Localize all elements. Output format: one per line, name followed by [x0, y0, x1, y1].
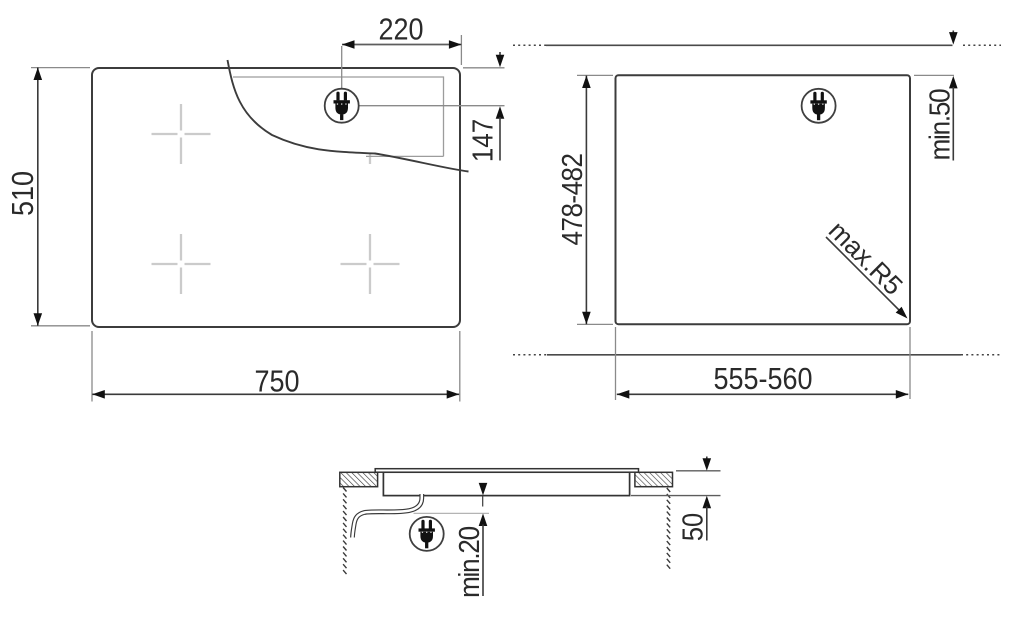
svg-text:50: 50	[676, 513, 709, 541]
svg-text:220: 220	[378, 13, 423, 47]
svg-text:555-560: 555-560	[713, 363, 812, 397]
svg-text:478-482: 478-482	[556, 154, 589, 246]
svg-text:min.50: min.50	[923, 89, 956, 161]
svg-text:147: 147	[466, 119, 499, 162]
svg-text:510: 510	[7, 171, 41, 216]
svg-text:min.20: min.20	[453, 526, 486, 598]
svg-text:750: 750	[254, 365, 299, 399]
